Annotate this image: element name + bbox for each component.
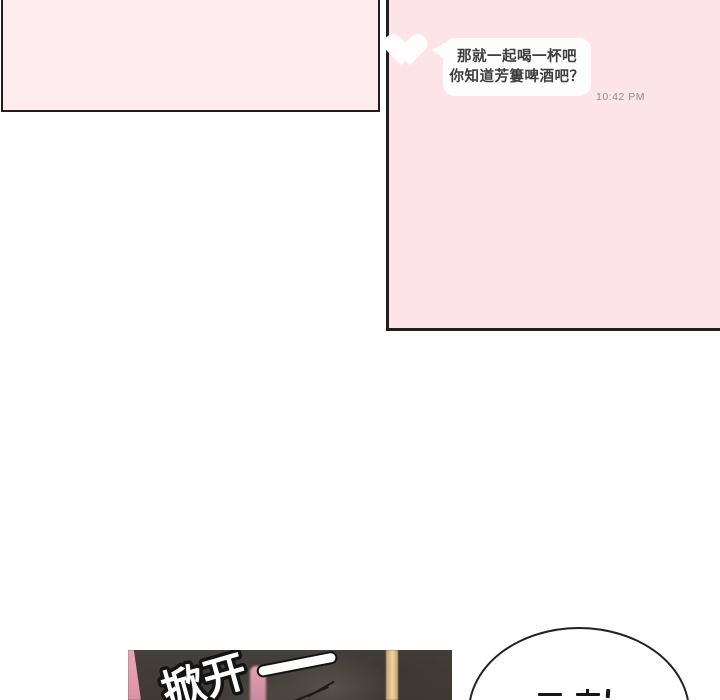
sfx-text: 掀开 (157, 650, 253, 700)
comic-panel-art: 掀开 (128, 650, 452, 700)
comic-reader-page: 那就一起喝一杯吧 你知道芳簍啤酒吧？ 10:42 PM 掀开 (0, 0, 720, 700)
speech-ellipse (468, 627, 690, 700)
chat-timestamp: 10:42 PM (596, 91, 645, 103)
comic-panel-empty (1, 0, 380, 112)
art-stick-shape (386, 650, 398, 700)
clipped-speech-text-fragment (538, 693, 562, 696)
heart-icon (391, 35, 429, 69)
clipped-speech-text-fragment (586, 689, 589, 694)
chat-bubble-line-1: 那就一起喝一杯吧 (443, 47, 591, 67)
chat-bubble: 那就一起喝一杯吧 你知道芳簍啤酒吧？ (443, 38, 591, 96)
chat-bubble-line-2: 你知道芳簍啤酒吧？ (443, 67, 591, 87)
sfx-dash-stroke (258, 652, 336, 676)
clipped-speech-text-fragment (606, 689, 610, 698)
sfx-graphic: 掀开 (136, 650, 368, 700)
comic-panel-chat: 那就一起喝一杯吧 你知道芳簍啤酒吧？ 10:42 PM (386, 0, 720, 331)
